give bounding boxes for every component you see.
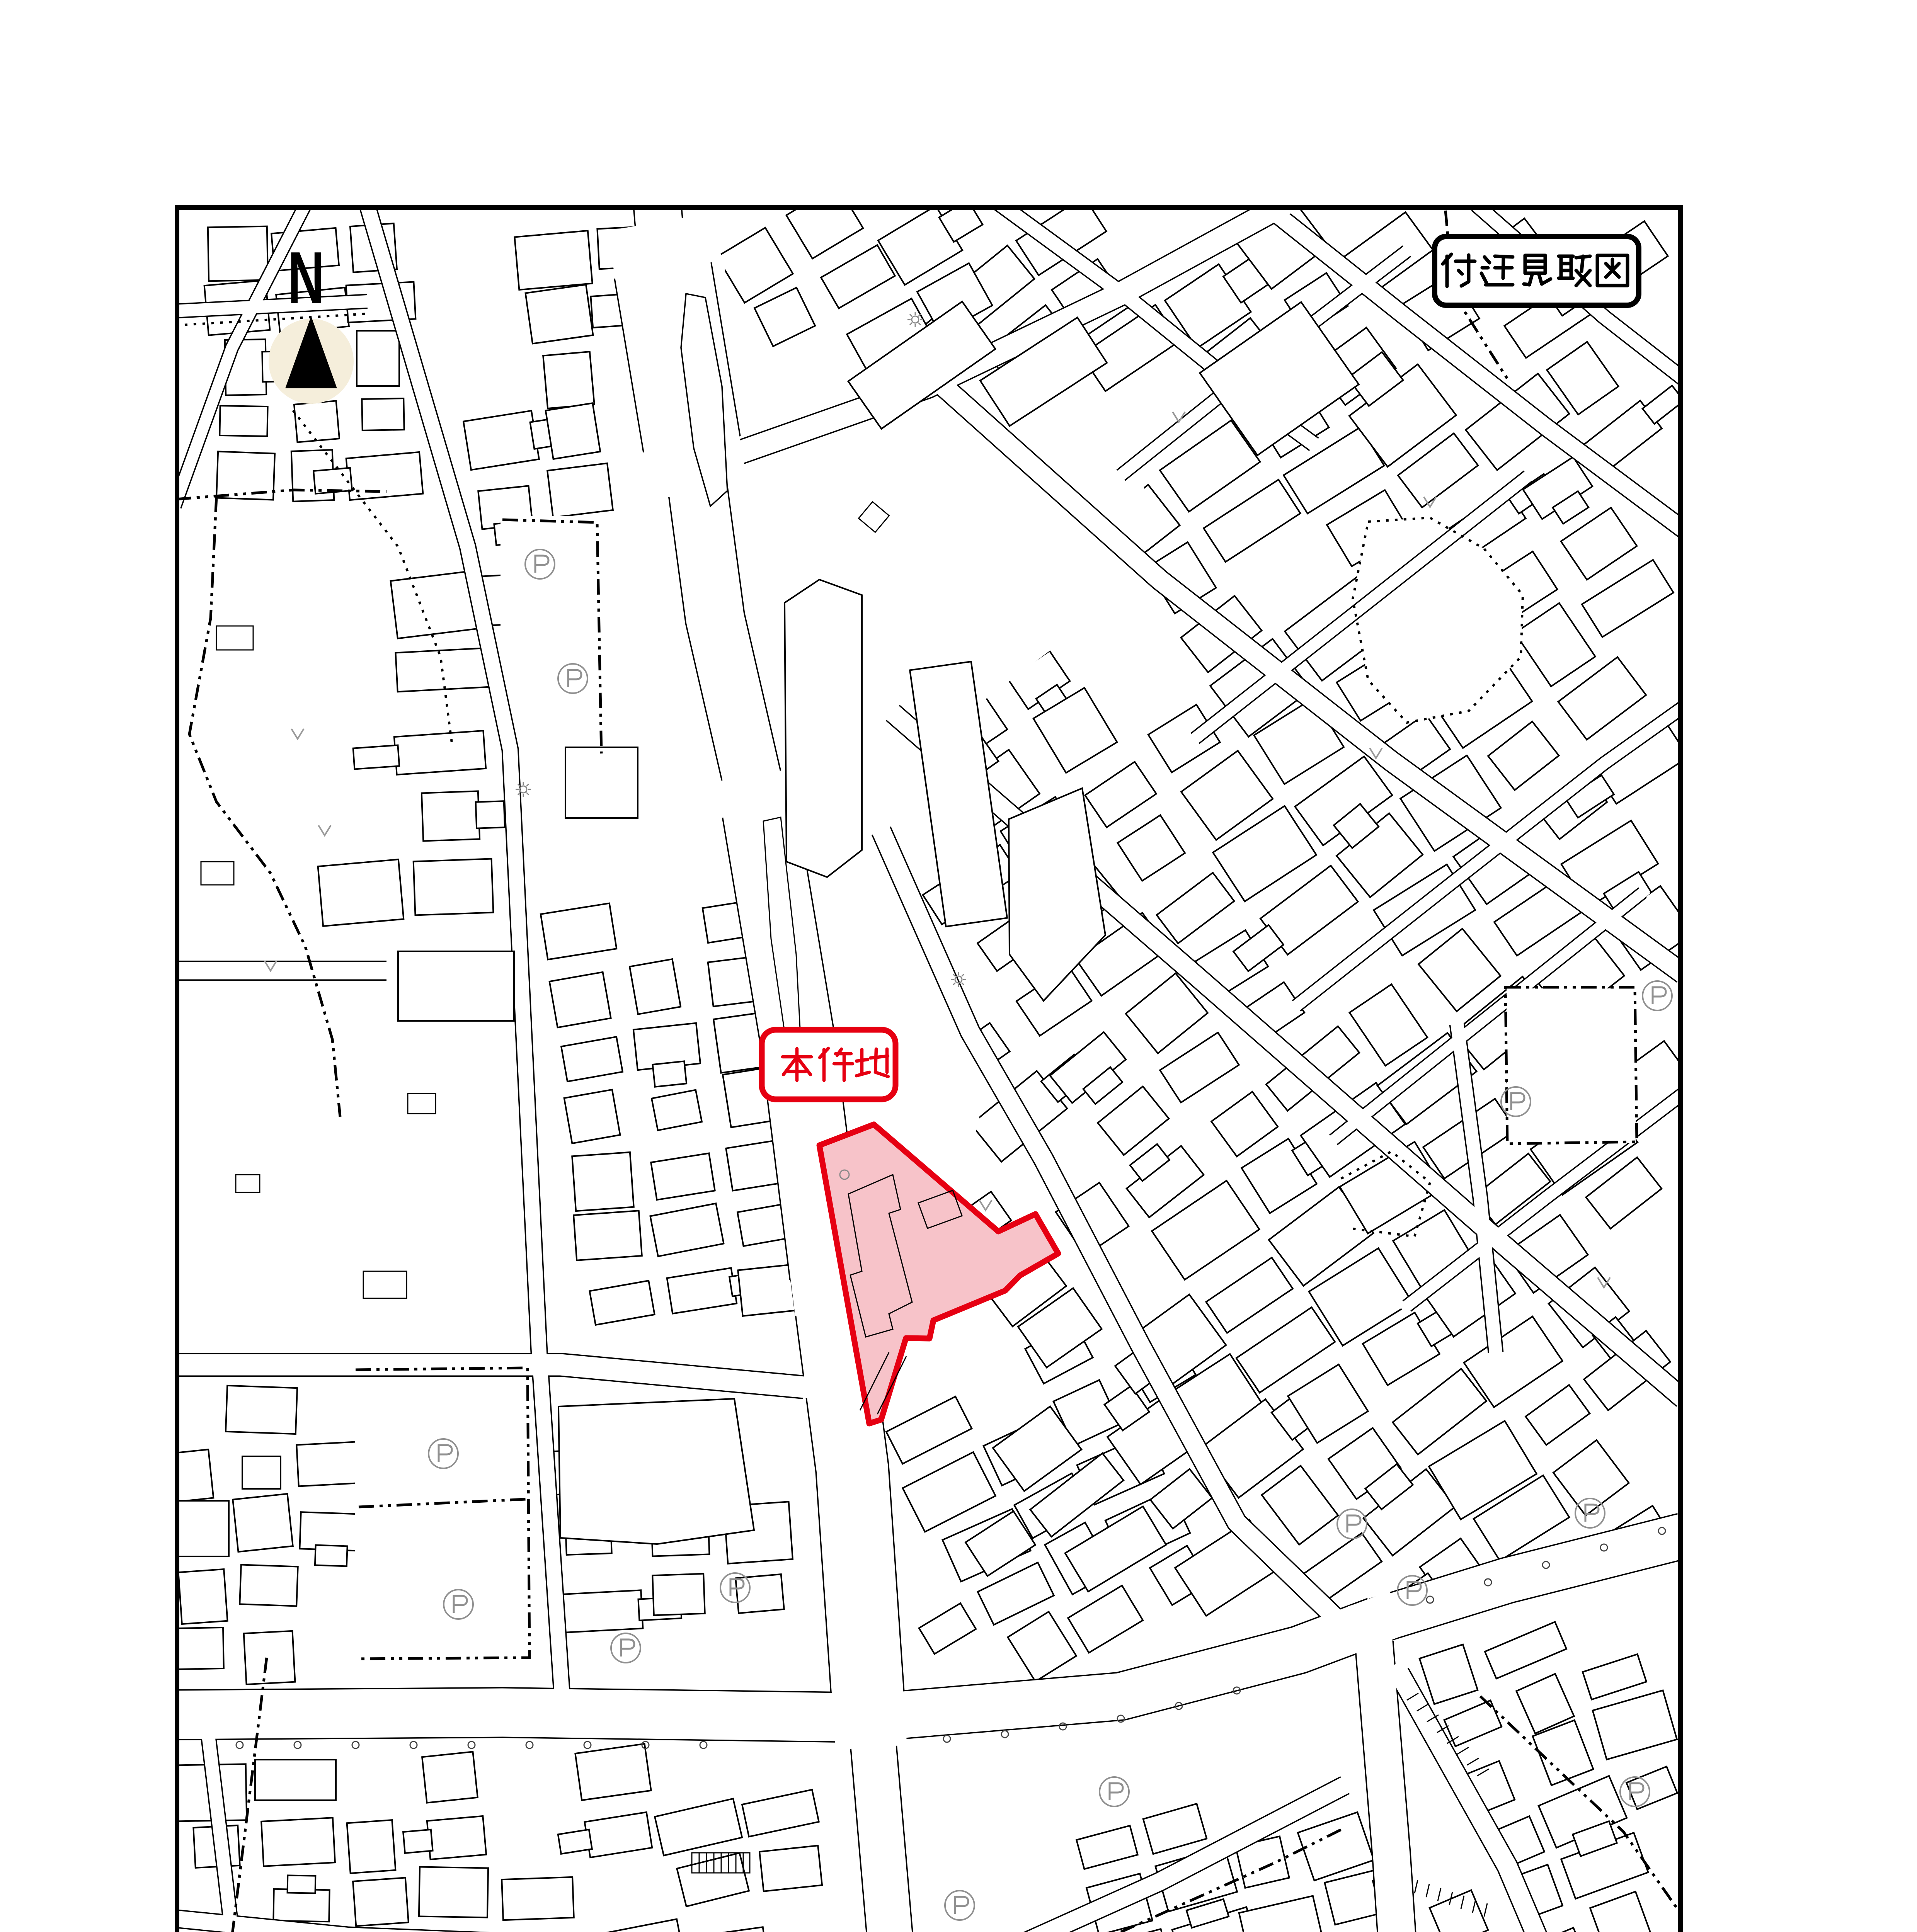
svg-text:N: N — [288, 237, 325, 319]
